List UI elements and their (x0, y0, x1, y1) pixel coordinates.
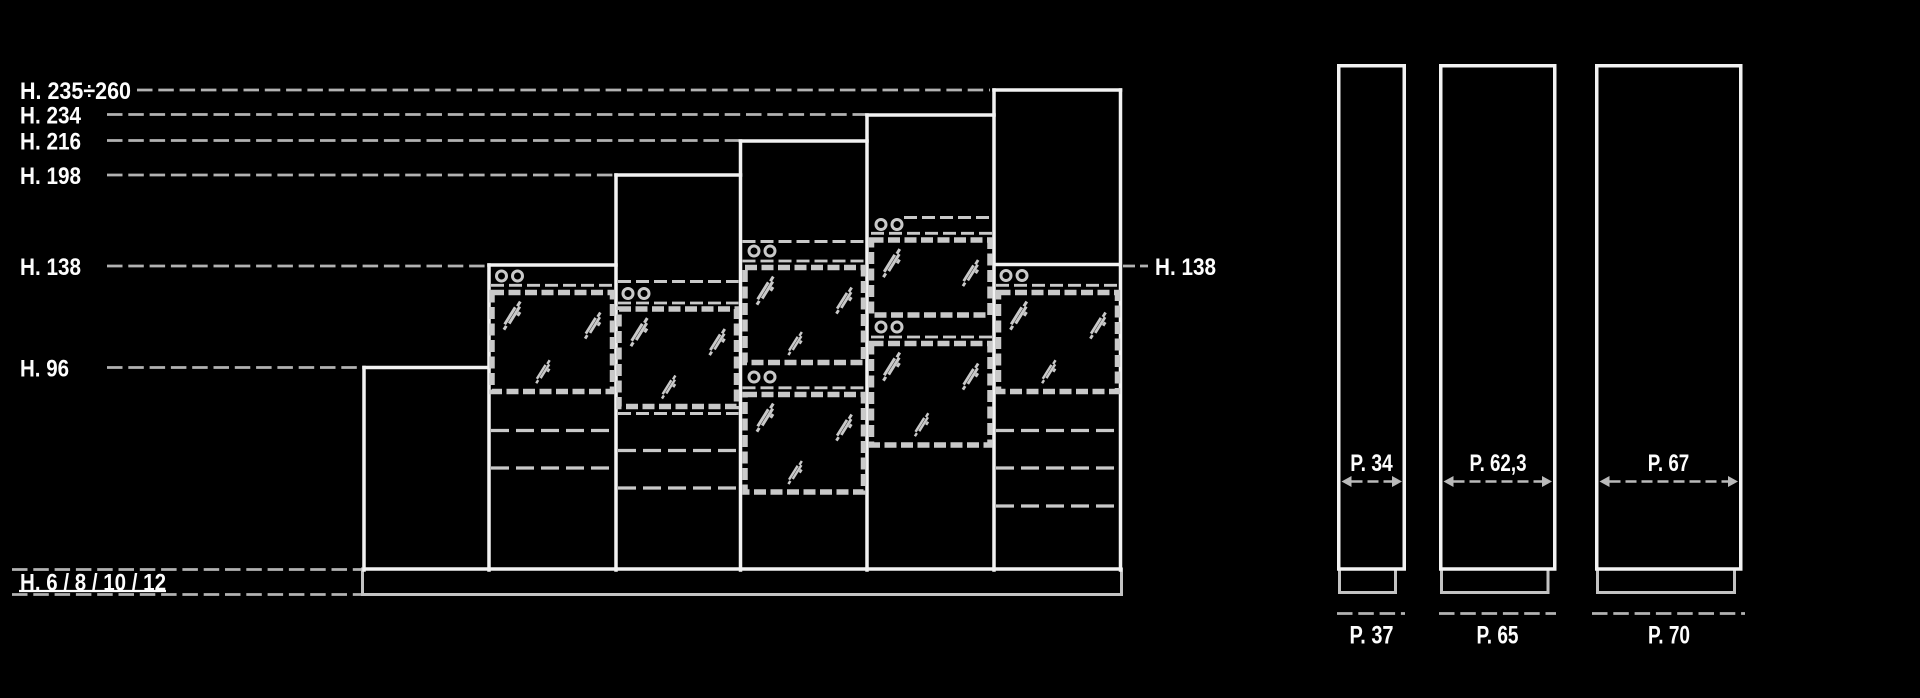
svg-text:P. 67: P. 67 (1648, 450, 1690, 477)
svg-text:H. 138: H. 138 (1155, 254, 1216, 281)
svg-text:H. 216: H. 216 (20, 128, 81, 155)
svg-text:P. 65: P. 65 (1477, 622, 1519, 650)
svg-text:P. 70: P. 70 (1648, 622, 1690, 650)
svg-text:H. 235÷260: H. 235÷260 (20, 78, 131, 105)
svg-text:H. 96: H. 96 (20, 355, 69, 382)
svg-text:H. 198: H. 198 (20, 163, 81, 190)
svg-text:H. 6 / 8 / 10 / 12: H. 6 / 8 / 10 / 12 (20, 569, 166, 596)
svg-text:P. 37: P. 37 (1350, 622, 1394, 650)
svg-text:P. 62,3: P. 62,3 (1470, 450, 1527, 477)
svg-text:H. 138: H. 138 (20, 254, 81, 281)
svg-text:P. 34: P. 34 (1350, 450, 1393, 477)
svg-text:H. 234: H. 234 (20, 102, 81, 129)
